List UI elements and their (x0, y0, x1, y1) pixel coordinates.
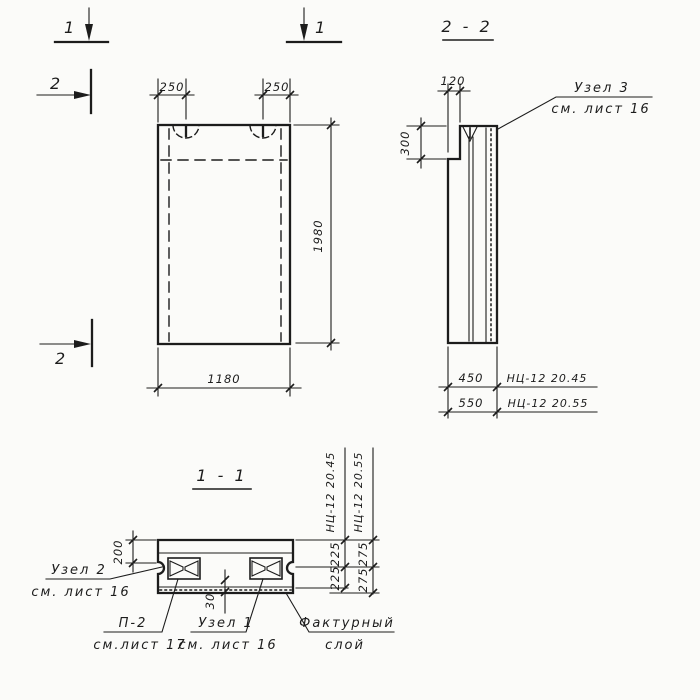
p-2-ref: см.лист 17 (93, 638, 186, 653)
dim-value: 250 (160, 80, 185, 94)
facing-label: Фактурный (299, 616, 395, 631)
void-outline (168, 558, 200, 579)
section-2-2-title: 2 - 2 (441, 17, 492, 36)
panel-mark-45: НЦ-12 20.45 (324, 452, 337, 533)
dim-225-top: 225 (328, 542, 342, 567)
thickness-row-550: 550 НЦ-12 20.55 (439, 396, 597, 416)
void-outline (250, 558, 282, 579)
section-2-2: 2 - 2 120 300 Узел 3 см. лист 16 (398, 17, 652, 418)
node-3-label: Узел 3 (574, 81, 630, 96)
marker-2-bottom-label: 2 (55, 349, 65, 368)
panel-mark: НЦ-12 20.55 (508, 397, 589, 410)
dim-275-top: 275 (356, 542, 370, 567)
section-marker-1-left: 1 (55, 8, 108, 42)
dim-225-bottom: 225 (328, 566, 342, 591)
cut-arrow-icon (300, 24, 308, 41)
void-2 (250, 558, 282, 579)
void-1 (168, 558, 200, 579)
cut-arrow-icon (85, 24, 93, 41)
node-2-ref: см. лист 16 (31, 585, 130, 600)
section-marker-1-right: 1 (287, 8, 341, 42)
section-1-1-title: 1 - 1 (196, 466, 247, 485)
facing-label-2: слой (325, 638, 365, 653)
node-1-ref: см. лист 16 (178, 638, 277, 653)
dim-300: 300 (398, 118, 446, 168)
extension-lines (407, 126, 446, 159)
panel-mark: НЦ-12 20.45 (507, 372, 588, 385)
node-1-label: Узел 1 (198, 616, 254, 631)
dim-1980: 1980 (294, 118, 339, 350)
marker-2-top-label: 2 (50, 74, 60, 93)
dim-1180: 1180 (147, 348, 301, 396)
dim-275-bottom: 275 (356, 568, 370, 593)
node-2-label: Узел 2 (51, 563, 107, 578)
dim-value: 250 (265, 80, 290, 94)
section-1-1: 1 - 1 200 30 (31, 448, 395, 653)
p-2-label: П-2 (119, 616, 148, 631)
marker-1-right-label: 1 (315, 18, 325, 37)
panel-outline (158, 125, 290, 344)
dim-value: 1180 (207, 372, 240, 386)
variant-dim-columns: НЦ-12 20.45 НЦ-12 20.55 225 225 275 275 (296, 448, 379, 597)
extension-lines (448, 84, 460, 152)
cut-arrow-icon (74, 340, 91, 348)
node-3-callout: Узел 3 см. лист 16 (498, 81, 652, 129)
void-bowtie (170, 561, 198, 576)
dim-250-left: 250 (150, 79, 194, 122)
marker-1-left-label: 1 (64, 18, 74, 37)
dim-120: 120 (438, 74, 470, 152)
node-2-callout: Узел 2 см. лист 16 (31, 563, 162, 600)
section-marker-2-bottom: 2 (40, 320, 92, 368)
dim-value: 300 (398, 131, 412, 156)
dim-value: 120 (441, 74, 466, 88)
node-3-ref: см. лист 16 (551, 102, 650, 117)
section-marker-2-top: 2 (37, 70, 91, 113)
dim-30: 30 (203, 570, 229, 613)
dim-value: 550 (459, 396, 484, 410)
panel-drawing-canvas: 1 1 2 2 250 (0, 0, 700, 700)
dim-250-right: 250 (255, 79, 298, 122)
panel-mark-55: НЦ-12 20.55 (352, 452, 365, 533)
cut-arrow-icon (74, 91, 91, 99)
void-bowtie (252, 561, 280, 576)
dim-value: 450 (459, 371, 484, 385)
facing-layer-callout: Фактурный слой (286, 593, 395, 653)
void-channel-lines (469, 137, 473, 341)
dim-value: 1980 (311, 219, 325, 252)
dim-value: 200 (111, 540, 125, 565)
front-view: 250 250 1980 1180 (147, 79, 339, 396)
dim-200: 200 (111, 531, 156, 572)
dim-value: 30 (203, 593, 217, 610)
